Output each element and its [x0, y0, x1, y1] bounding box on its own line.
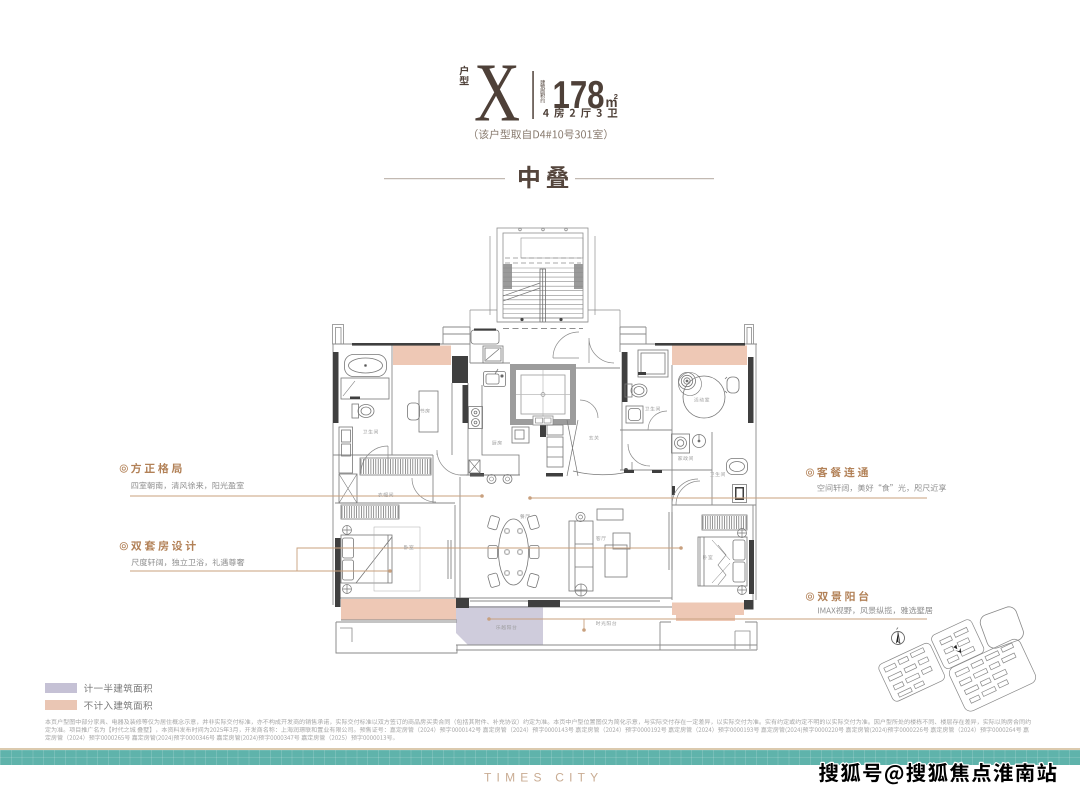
svg-text:2: 2	[614, 92, 618, 101]
svg-text:178: 178	[553, 74, 605, 117]
svg-text:TIMES CITY: TIMES CITY	[484, 771, 603, 785]
svg-text:X: X	[474, 47, 520, 139]
